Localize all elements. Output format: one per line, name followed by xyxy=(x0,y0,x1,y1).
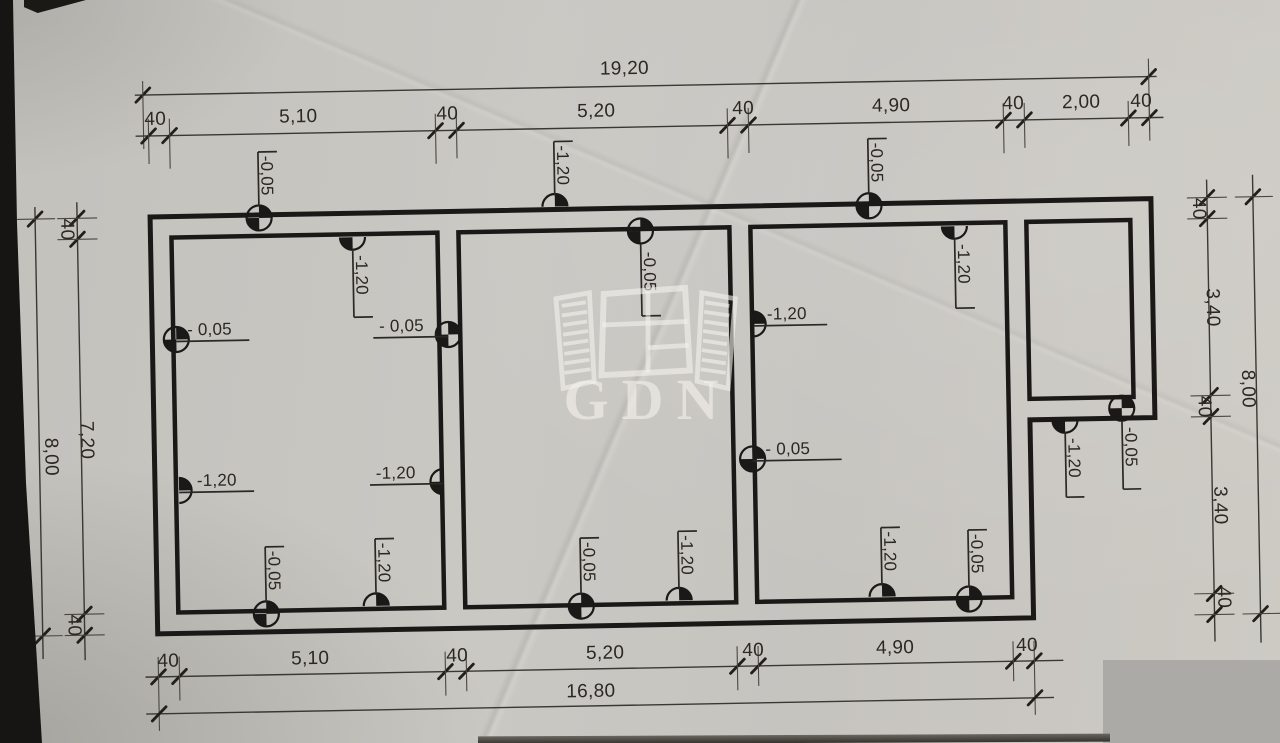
benchmark-m7 xyxy=(164,327,189,352)
elevation-label-m4: -1,20 xyxy=(352,255,372,295)
dim-bottom-2: 40 xyxy=(446,645,468,666)
dim-bottom-1: 5,10 xyxy=(291,648,330,670)
benchmark-m2 xyxy=(542,194,567,207)
dim-left-1: 7,20 xyxy=(76,421,98,460)
benchmark-m11 xyxy=(753,311,766,336)
benchmark-m13 xyxy=(1052,420,1077,433)
benchmark-m19 xyxy=(869,584,894,597)
benchmark-m16 xyxy=(364,593,389,606)
benchmark-m14 xyxy=(1109,395,1134,420)
benchmark-m12 xyxy=(740,446,765,471)
benchmark-m18 xyxy=(666,588,691,601)
elevation-label-m5: -0,05 xyxy=(640,252,660,292)
elevation-label-m18: -1,20 xyxy=(677,535,697,575)
dim-left-2: 40 xyxy=(63,614,84,636)
elevation-label-m14: -0,05 xyxy=(1121,427,1141,467)
dim-bottom-overall: 16,80 xyxy=(566,681,615,703)
elevation-label-m2: -1,20 xyxy=(553,145,573,185)
dimension-top: 19,20 40 5,10 40 5,20 40 4,90 40 2,00 40 xyxy=(134,48,1164,169)
elevation-label-m19: -1,20 xyxy=(880,531,900,571)
dim-top-7: 2,00 xyxy=(1062,92,1101,114)
benchmark-markers xyxy=(161,183,1138,628)
dim-top-overall: 19,20 xyxy=(600,58,649,80)
elevation-label-m17: -0,05 xyxy=(579,542,599,582)
benchmark-m15 xyxy=(254,601,279,626)
elevation-label-m7: - 0,05 xyxy=(187,319,232,339)
elevation-label-m20: -0,05 xyxy=(967,534,987,574)
scanned-floor-plan: 19,20 40 5,10 40 5,20 40 4,90 40 2,00 40 xyxy=(0,0,1280,743)
dim-right-4: 40 xyxy=(1213,586,1234,608)
scan-edge-shadow xyxy=(478,734,1110,743)
dim-bottom-0: 40 xyxy=(157,650,179,671)
dim-top-3: 5,20 xyxy=(577,100,616,122)
benchmark-m6 xyxy=(942,226,967,239)
elevation-label-m3: -0,05 xyxy=(867,142,887,182)
dim-top-2: 40 xyxy=(436,103,458,124)
dim-bottom-6: 40 xyxy=(1016,635,1038,656)
benchmark-m1 xyxy=(246,205,271,230)
dimension-right: 40 3,40 40 3,40 40 8,00 xyxy=(1186,174,1280,643)
dim-top-5: 4,90 xyxy=(872,95,911,117)
elevation-label-m13: -1,20 xyxy=(1064,438,1084,478)
elevation-label-m16: -1,20 xyxy=(374,543,394,583)
dim-left-overall: 8,00 xyxy=(40,438,62,477)
dim-left-0: 40 xyxy=(56,218,77,240)
dimension-bottom: 40 5,10 40 5,20 40 4,90 40 16,80 xyxy=(145,634,1064,731)
room-4-extension-outline xyxy=(1026,220,1133,399)
redacted-gray-patch xyxy=(1103,660,1280,743)
dim-bottom-5: 4,90 xyxy=(876,637,915,659)
benchmark-m8 xyxy=(179,478,192,503)
dim-top-4: 40 xyxy=(732,98,754,119)
elevation-label-m15: -0,05 xyxy=(264,551,284,591)
dim-bottom-4: 40 xyxy=(742,640,764,661)
benchmark-m4 xyxy=(340,237,365,250)
elevation-label-m10: -1,20 xyxy=(376,463,416,483)
dim-right-1: 3,40 xyxy=(1202,288,1224,327)
elevation-label-m12: - 0,05 xyxy=(765,439,810,459)
dim-top-0: 40 xyxy=(144,109,166,130)
elevation-label-m6: -1,20 xyxy=(954,244,974,284)
elevation-label-m1: -0,05 xyxy=(257,156,277,196)
dim-top-8: 40 xyxy=(1130,91,1152,112)
dim-top-6: 40 xyxy=(1002,93,1024,114)
elevation-label-m9: - 0,05 xyxy=(379,316,424,336)
dim-right-3: 3,40 xyxy=(1209,486,1231,525)
plan-drawing: 19,20 40 5,10 40 5,20 40 4,90 40 2,00 40 xyxy=(0,0,1280,743)
dim-right-0: 40 xyxy=(1188,198,1209,220)
dim-top-1: 5,10 xyxy=(279,106,318,128)
dim-right-2: 40 xyxy=(1194,396,1215,418)
foundation-plan: 19,20 40 5,10 40 5,20 40 4,90 40 2,00 40 xyxy=(0,0,1280,743)
elevation-label-m8: -1,20 xyxy=(197,470,237,490)
elevation-label-m11: -1,20 xyxy=(767,304,807,324)
dim-right-overall: 8,00 xyxy=(1237,370,1259,409)
dim-bottom-3: 5,20 xyxy=(586,642,625,664)
room-1-outline xyxy=(171,233,444,613)
